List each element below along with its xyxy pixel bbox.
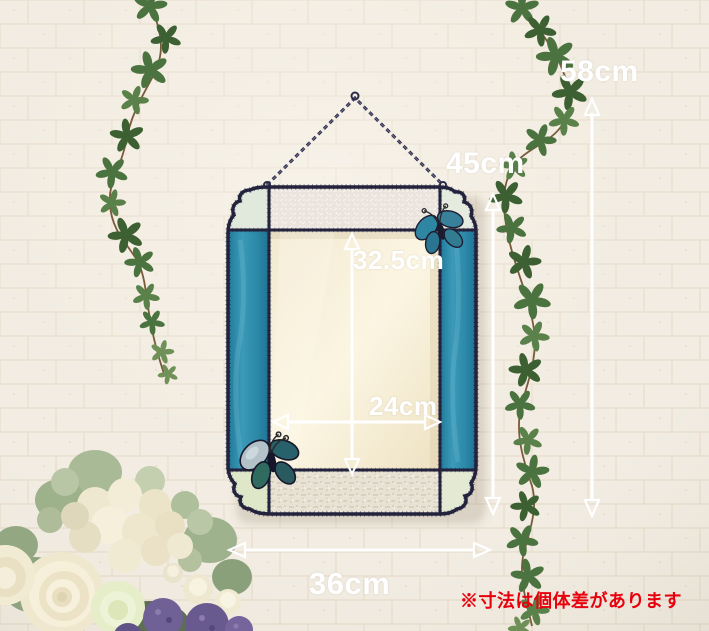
frame-height-arrow: [486, 194, 500, 514]
frame-width-label: 36cm: [309, 568, 390, 599]
total-height-label: 58cm: [560, 57, 639, 87]
frame-width-arrow: [229, 543, 490, 557]
measurement-annotation-layer: [0, 0, 709, 631]
product-photo-scene: 58cm 45cm 32.5cm 24cm 36cm ※寸法は個体差があります: [0, 0, 709, 631]
size-disclaimer-note: ※寸法は個体差があります: [460, 592, 682, 610]
glass-width-label: 24cm: [369, 393, 438, 419]
total-height-arrow: [585, 99, 599, 516]
frame-height-label: 45cm: [446, 149, 525, 179]
glass-height-label: 32.5cm: [353, 247, 444, 273]
